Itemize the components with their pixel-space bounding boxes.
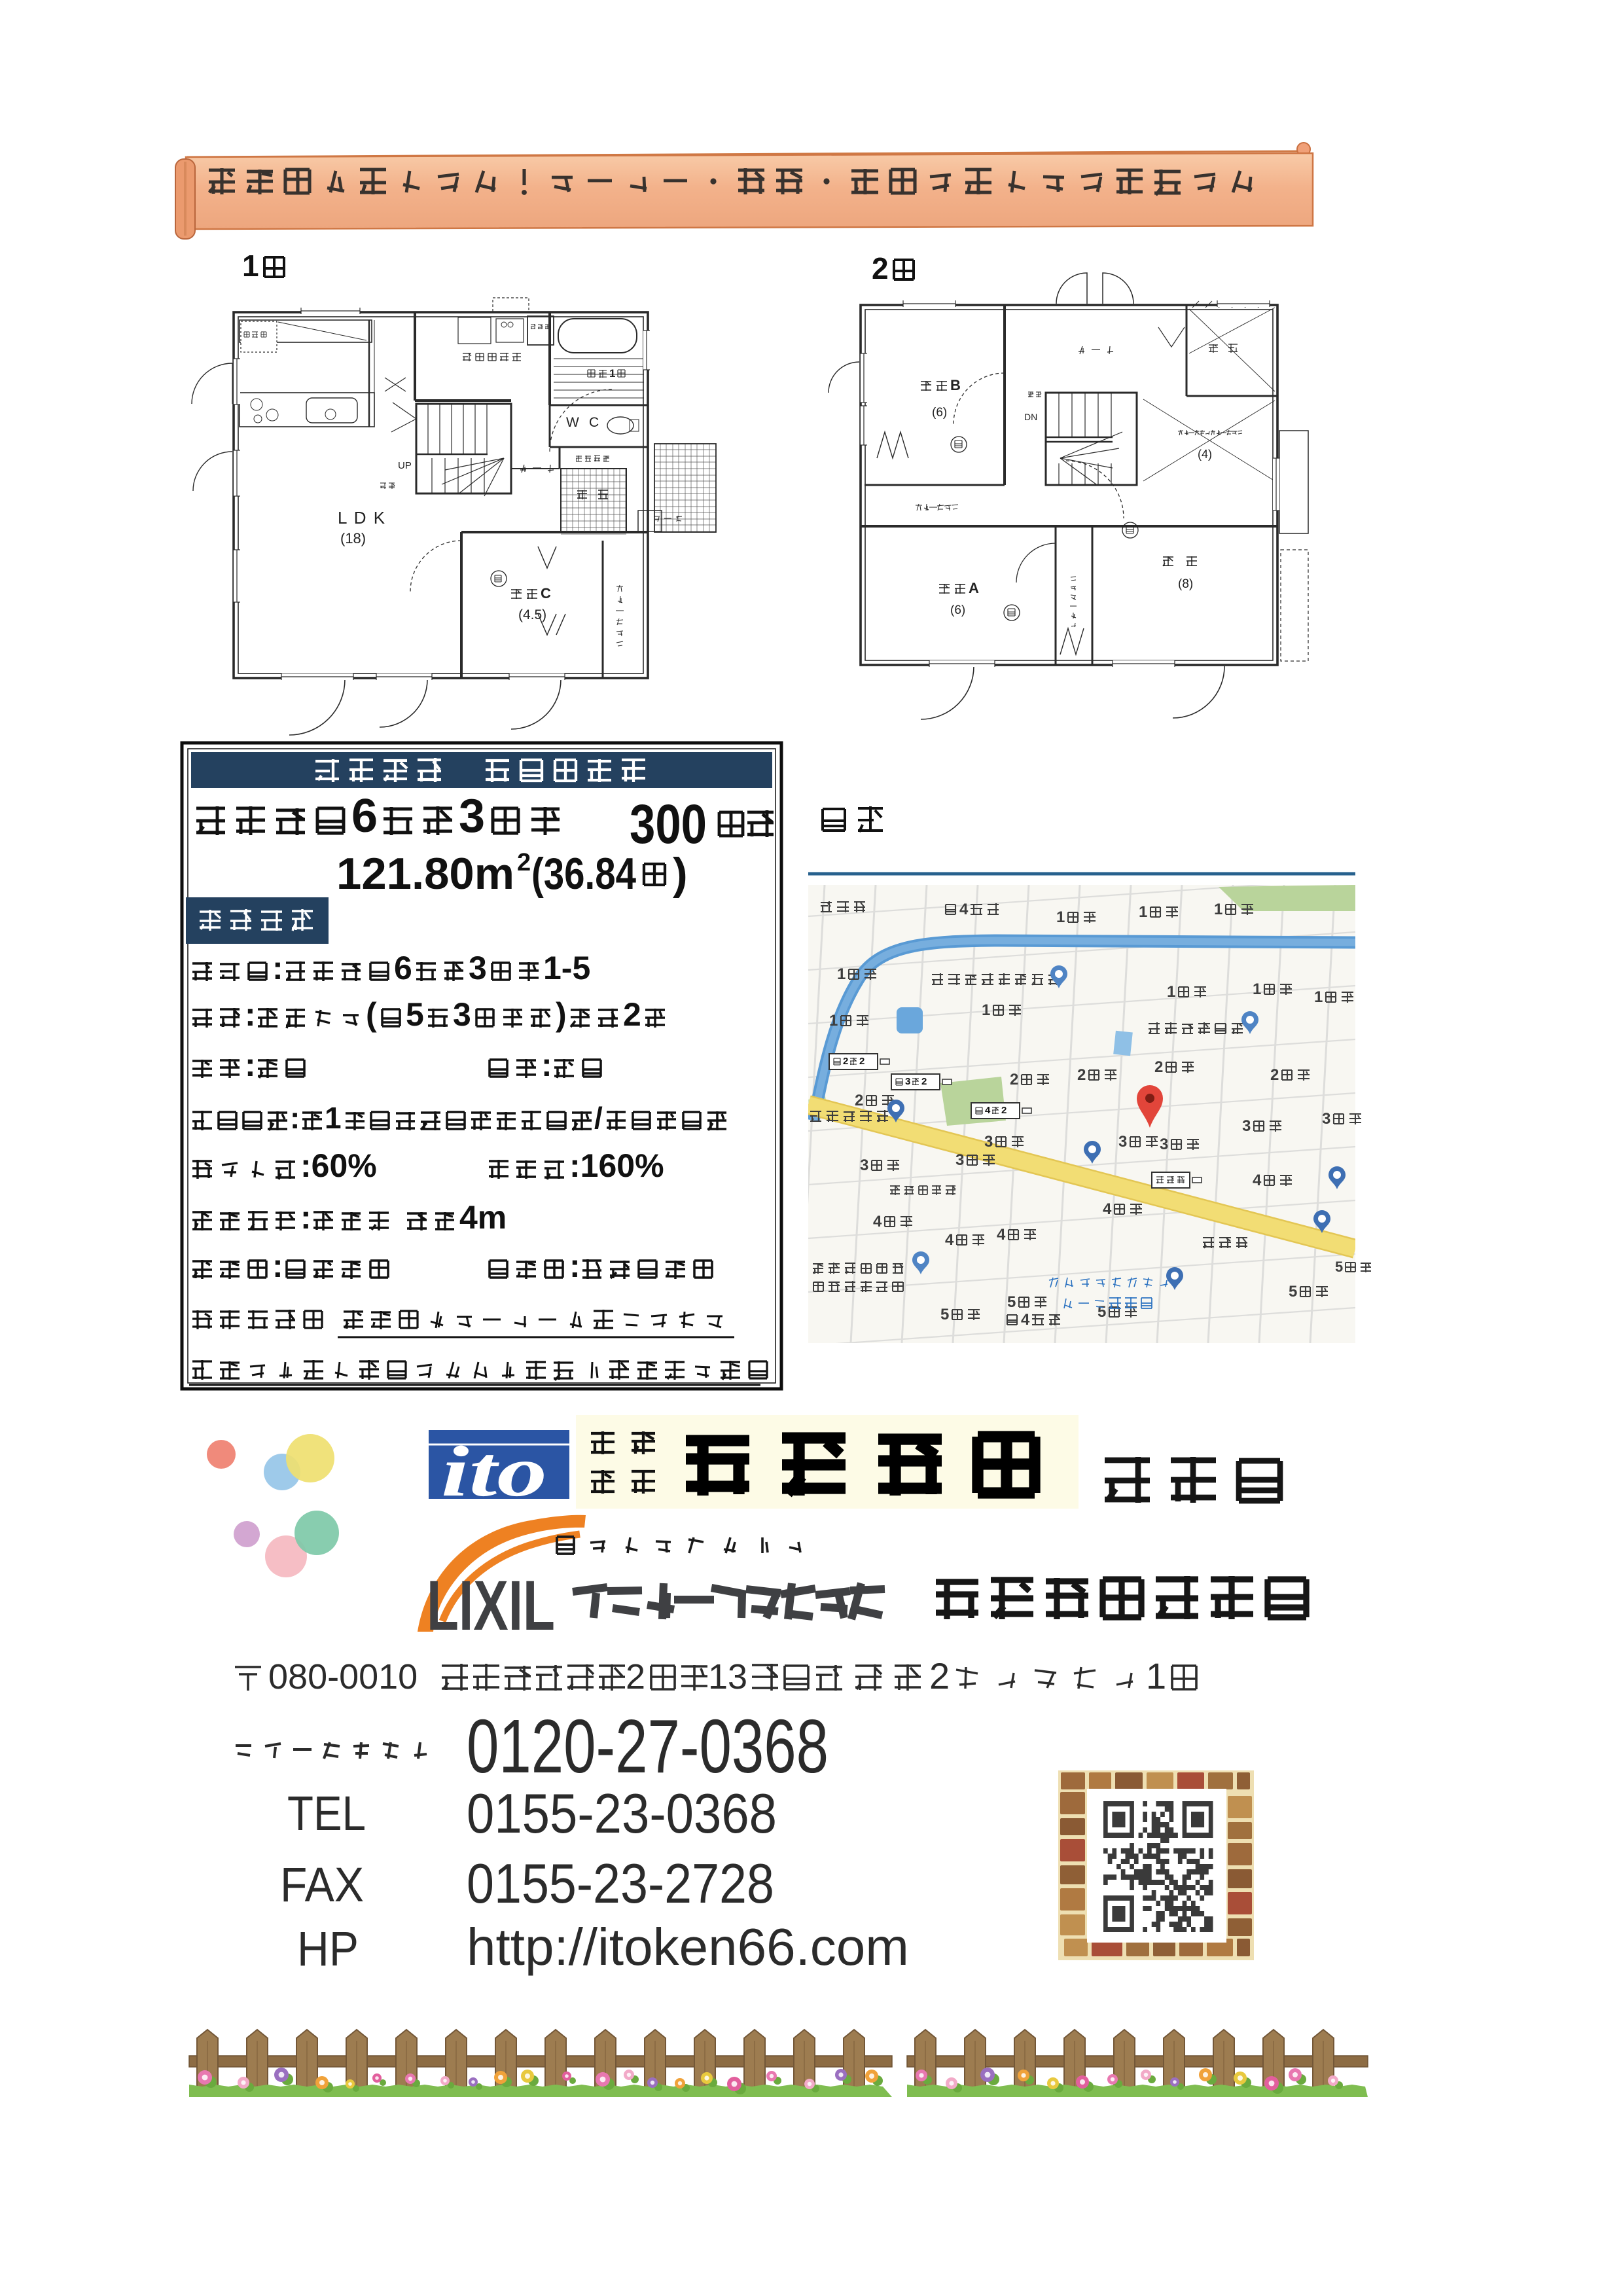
svg-text:5: 5 <box>1289 1283 1297 1300</box>
svg-text:121.80m: 121.80m <box>336 849 514 899</box>
svg-text::: : <box>272 1247 283 1284</box>
svg-text::: : <box>569 1247 580 1284</box>
svg-text:B: B <box>950 377 961 393</box>
svg-text:2: 2 <box>921 1076 927 1087</box>
svg-text:1: 1 <box>829 1012 838 1030</box>
svg-text:5: 5 <box>1097 1303 1106 1321</box>
svg-text:5: 5 <box>1335 1259 1343 1275</box>
svg-text:3: 3 <box>905 1076 910 1087</box>
svg-text:080-0010: 080-0010 <box>268 1657 418 1696</box>
svg-text:2: 2 <box>1077 1066 1086 1084</box>
svg-text:1: 1 <box>1139 903 1147 921</box>
svg-text:2: 2 <box>859 1056 865 1067</box>
svg-text:DN: DN <box>1024 412 1037 422</box>
svg-text::60%: :60% <box>300 1147 377 1184</box>
svg-text:13: 13 <box>708 1657 747 1696</box>
svg-text:1: 1 <box>1314 988 1323 1006</box>
svg-text:4: 4 <box>1021 1311 1030 1329</box>
svg-text:0155-23-0368: 0155-23-0368 <box>467 1783 777 1845</box>
svg-text:L D K: L D K <box>338 508 386 528</box>
svg-text:(18): (18) <box>340 530 366 547</box>
svg-text:2: 2 <box>517 849 531 876</box>
svg-text:2: 2 <box>626 1657 645 1696</box>
svg-text:3: 3 <box>1160 1136 1168 1153</box>
svg-text:3: 3 <box>453 996 471 1033</box>
svg-text:1: 1 <box>982 1001 990 1019</box>
svg-text:): ) <box>673 849 688 899</box>
svg-text:1: 1 <box>837 965 846 983</box>
svg-text:1: 1 <box>1214 901 1222 918</box>
svg-text:(4.5): (4.5) <box>518 607 546 622</box>
svg-text:4: 4 <box>945 1231 954 1249</box>
svg-text::: : <box>245 1047 256 1083</box>
svg-text:4: 4 <box>985 1105 991 1116</box>
svg-text:1: 1 <box>325 1101 342 1135</box>
svg-text:2: 2 <box>843 1056 848 1067</box>
svg-text:(8): (8) <box>1178 577 1193 591</box>
svg-text:1: 1 <box>1253 980 1261 998</box>
svg-text:3: 3 <box>1322 1110 1330 1128</box>
svg-text::160%: :160% <box>569 1147 664 1184</box>
svg-text:5: 5 <box>406 996 424 1033</box>
svg-text:2: 2 <box>1001 1105 1007 1116</box>
svg-text:5: 5 <box>1007 1293 1016 1311</box>
svg-text:3: 3 <box>955 1151 964 1169</box>
svg-text:http://itoken66.com: http://itoken66.com <box>467 1918 909 1976</box>
svg-text:FAX: FAX <box>280 1857 364 1912</box>
svg-text:/: / <box>594 1101 603 1135</box>
svg-text:1: 1 <box>1146 1655 1166 1696</box>
svg-text::: : <box>541 1047 552 1083</box>
svg-text:3: 3 <box>459 790 485 842</box>
svg-text:5: 5 <box>940 1306 949 1323</box>
svg-text:3: 3 <box>1118 1133 1127 1151</box>
svg-text:(4): (4) <box>1198 448 1212 461</box>
svg-text:(: ( <box>366 996 377 1033</box>
svg-text:UP: UP <box>398 460 412 471</box>
svg-text:ito: ito <box>441 1431 547 1511</box>
svg-text:C: C <box>589 415 599 430</box>
svg-text:TEL: TEL <box>287 1786 366 1840</box>
svg-text:4: 4 <box>1103 1200 1112 1218</box>
svg-text:A: A <box>969 580 979 596</box>
svg-text:(6): (6) <box>950 603 965 617</box>
svg-text:C: C <box>541 585 551 601</box>
svg-text:2: 2 <box>1010 1071 1018 1088</box>
svg-text:2: 2 <box>1154 1058 1163 1076</box>
svg-text:1: 1 <box>1167 983 1175 1001</box>
svg-text:1-5: 1-5 <box>543 950 590 986</box>
svg-text:1: 1 <box>242 249 259 283</box>
svg-text:(6): (6) <box>932 406 947 420</box>
svg-text:2: 2 <box>623 996 641 1033</box>
svg-text:6: 6 <box>394 950 412 986</box>
svg-text:3: 3 <box>860 1157 868 1174</box>
svg-text:6: 6 <box>351 790 378 842</box>
svg-text:3: 3 <box>984 1133 993 1151</box>
svg-text:2: 2 <box>929 1655 950 1696</box>
svg-text:4: 4 <box>1253 1172 1262 1189</box>
svg-text::: : <box>245 996 256 1033</box>
svg-text:4m: 4m <box>459 1199 507 1236</box>
svg-text:): ) <box>556 996 567 1033</box>
svg-text:W: W <box>566 415 579 430</box>
svg-text:(36.84: (36.84 <box>531 849 636 899</box>
svg-text:HP: HP <box>297 1922 359 1976</box>
svg-text::: : <box>272 950 283 986</box>
svg-text:0155-23-2728: 0155-23-2728 <box>467 1853 774 1915</box>
svg-text:3: 3 <box>1242 1117 1251 1135</box>
svg-text:1: 1 <box>609 367 615 380</box>
svg-text:300: 300 <box>630 793 707 855</box>
svg-text:0120-27-0368: 0120-27-0368 <box>467 1704 829 1789</box>
svg-text::: : <box>290 1101 300 1135</box>
svg-text:4: 4 <box>959 901 969 918</box>
svg-text:4: 4 <box>873 1213 882 1230</box>
svg-text:2: 2 <box>1270 1066 1279 1084</box>
svg-text:3: 3 <box>469 950 487 986</box>
svg-text:1: 1 <box>1056 908 1065 926</box>
svg-text:LIXIL: LIXIL <box>427 1566 555 1645</box>
svg-text::: : <box>300 1199 312 1236</box>
svg-text:2: 2 <box>872 251 889 285</box>
svg-text:4: 4 <box>997 1226 1006 1244</box>
svg-text:2: 2 <box>855 1092 863 1109</box>
